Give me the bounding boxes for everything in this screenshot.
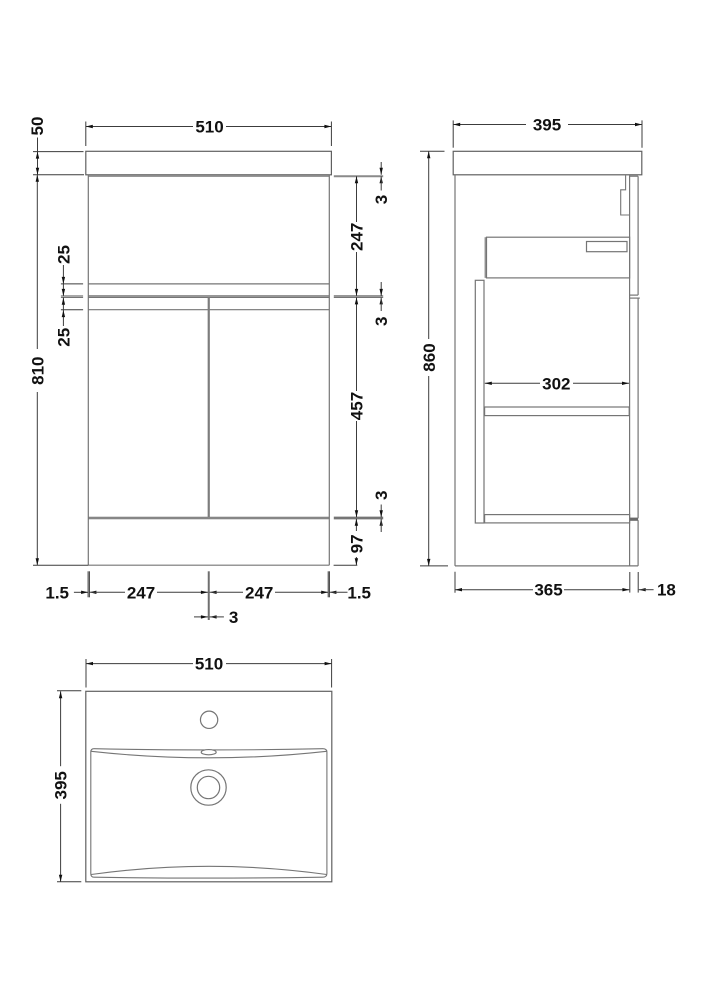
svg-text:97: 97: [347, 534, 366, 553]
svg-text:247: 247: [245, 583, 273, 602]
svg-text:3: 3: [229, 608, 238, 627]
svg-text:3: 3: [372, 195, 391, 204]
svg-text:3: 3: [372, 317, 391, 326]
svg-text:457: 457: [348, 392, 367, 420]
svg-text:247: 247: [348, 223, 367, 251]
svg-text:18: 18: [657, 581, 676, 600]
svg-text:3: 3: [372, 491, 391, 500]
svg-text:395: 395: [52, 771, 71, 799]
svg-text:395: 395: [533, 116, 561, 135]
svg-text:365: 365: [534, 581, 562, 600]
svg-text:50: 50: [28, 117, 47, 136]
svg-text:1.5: 1.5: [347, 583, 371, 602]
svg-text:510: 510: [195, 118, 223, 137]
svg-text:302: 302: [542, 374, 570, 393]
svg-text:25: 25: [54, 245, 73, 264]
svg-text:25: 25: [54, 328, 73, 347]
svg-text:860: 860: [420, 343, 439, 371]
svg-text:510: 510: [195, 655, 223, 674]
svg-text:1.5: 1.5: [45, 583, 69, 602]
svg-text:810: 810: [28, 357, 47, 385]
svg-text:247: 247: [127, 583, 155, 602]
